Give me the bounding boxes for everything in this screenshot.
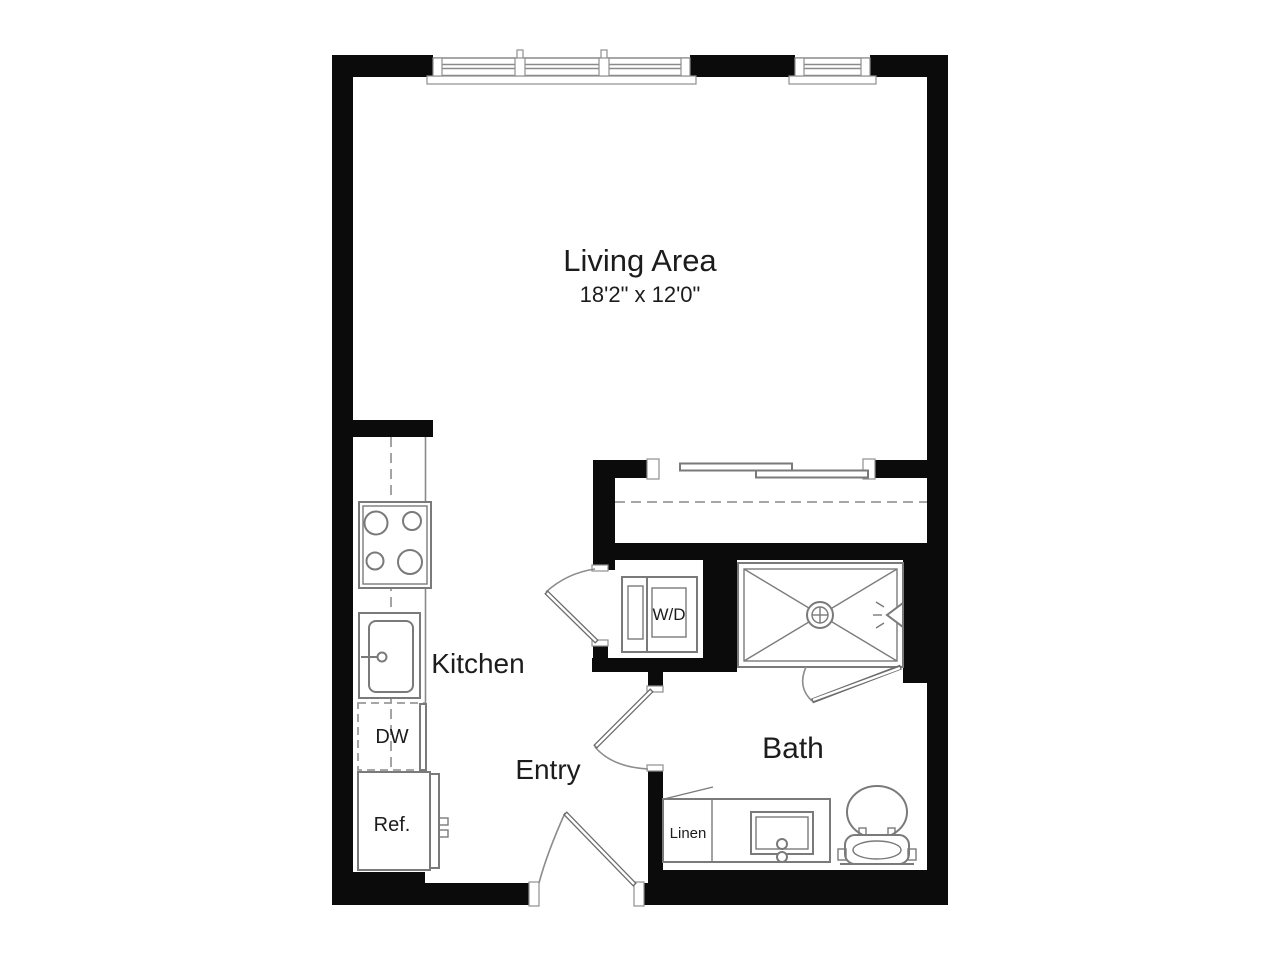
wall-top-right <box>870 55 948 77</box>
stove <box>359 502 431 588</box>
vanity-faucet-icon <box>777 839 787 849</box>
wall-shower-right <box>903 560 927 683</box>
refrigerator-handle <box>439 818 448 825</box>
front-door-leaf-inner <box>566 814 634 884</box>
wall-kitchen-stub <box>353 420 433 437</box>
closet-jamb-left <box>647 459 659 479</box>
shower-door-leaf-inner <box>813 668 900 700</box>
wd-door-arc <box>546 569 595 592</box>
bath-fixtures: Linen <box>647 686 916 864</box>
wall-left <box>332 55 353 905</box>
front-door-arc <box>539 813 565 883</box>
wall-bottom-left <box>332 883 538 905</box>
vanity-faucet-icon <box>777 852 787 862</box>
stove-burner <box>398 550 422 574</box>
wd-door-jamb <box>592 565 608 571</box>
kitchen-sink <box>359 613 420 698</box>
drain-icon <box>807 602 833 628</box>
wall-closet-bottom <box>593 543 948 560</box>
window-end-post <box>795 58 804 76</box>
shower-door <box>803 667 901 701</box>
front-door-jamb <box>634 882 644 906</box>
entry-label: Entry <box>515 754 580 785</box>
wd-door-leaf-inner <box>547 593 596 641</box>
doors <box>529 690 652 906</box>
living-area-label: Living Area <box>563 243 717 278</box>
wall-bottom-right <box>635 883 948 905</box>
wall-bath-entry <box>648 770 663 883</box>
sink-faucet-icon <box>378 653 387 662</box>
wall-bottom-bath-step <box>663 870 948 884</box>
window-sill <box>427 76 696 84</box>
window-mullion <box>515 58 525 76</box>
stove-burner <box>403 512 421 530</box>
wd-door <box>546 569 597 642</box>
front-door <box>529 813 644 906</box>
bath-door-arc <box>595 747 648 769</box>
wall-right <box>927 55 948 905</box>
floorplan-drawing: DW Ref. W/D <box>0 0 1280 960</box>
refrigerator-handle <box>439 830 448 837</box>
bath-door-leaf-inner <box>596 691 651 746</box>
window-living-small <box>789 58 876 84</box>
refrigerator-label: Ref. <box>374 814 411 836</box>
window-end-post <box>681 58 690 76</box>
refrigerator-door <box>430 774 439 868</box>
front-door-jamb <box>529 882 539 906</box>
dishwasher: DW <box>358 703 426 770</box>
bath-label: Bath <box>762 732 824 765</box>
dishwasher-label: DW <box>375 726 408 748</box>
toilet <box>838 786 916 864</box>
wall-top-left <box>332 55 433 77</box>
linen-label: Linen <box>670 825 707 842</box>
closet-sliding-door-panel <box>680 464 792 471</box>
bath-door-jamb <box>647 765 663 771</box>
refrigerator: Ref. <box>358 772 448 870</box>
bath-door <box>595 690 652 769</box>
closet-sliding-door-panel <box>756 471 868 478</box>
shower-door-arc <box>803 667 812 701</box>
dishwasher-front-panel <box>420 704 426 770</box>
room-labels: Living Area 18'2" x 12'0" Kitchen Entry … <box>431 243 824 785</box>
living-area-dimensions: 18'2" x 12'0" <box>580 282 701 307</box>
wall-wd-shower-divider <box>703 558 737 672</box>
linen-door <box>664 787 713 799</box>
wall-bottom-kitchen-step <box>353 872 425 884</box>
washer-dryer-label: W/D <box>652 605 685 624</box>
vanity: Linen <box>663 787 830 862</box>
stove-burner <box>365 512 388 535</box>
shower <box>738 563 903 701</box>
wall-wd-bottom <box>592 658 737 672</box>
floorplan-page: DW Ref. W/D <box>0 0 1280 960</box>
window-living-large <box>427 50 696 84</box>
window-sill <box>789 76 876 84</box>
window-mullion <box>599 58 609 76</box>
window-end-post <box>433 58 442 76</box>
laundry-closet: W/D <box>546 565 697 652</box>
window-end-post <box>861 58 870 76</box>
stove-burner <box>367 553 384 570</box>
wall-closet-top-right <box>875 460 948 478</box>
toilet-bowl <box>847 786 907 838</box>
kitchen-label: Kitchen <box>431 648 524 679</box>
wall-top-middle <box>690 55 795 77</box>
